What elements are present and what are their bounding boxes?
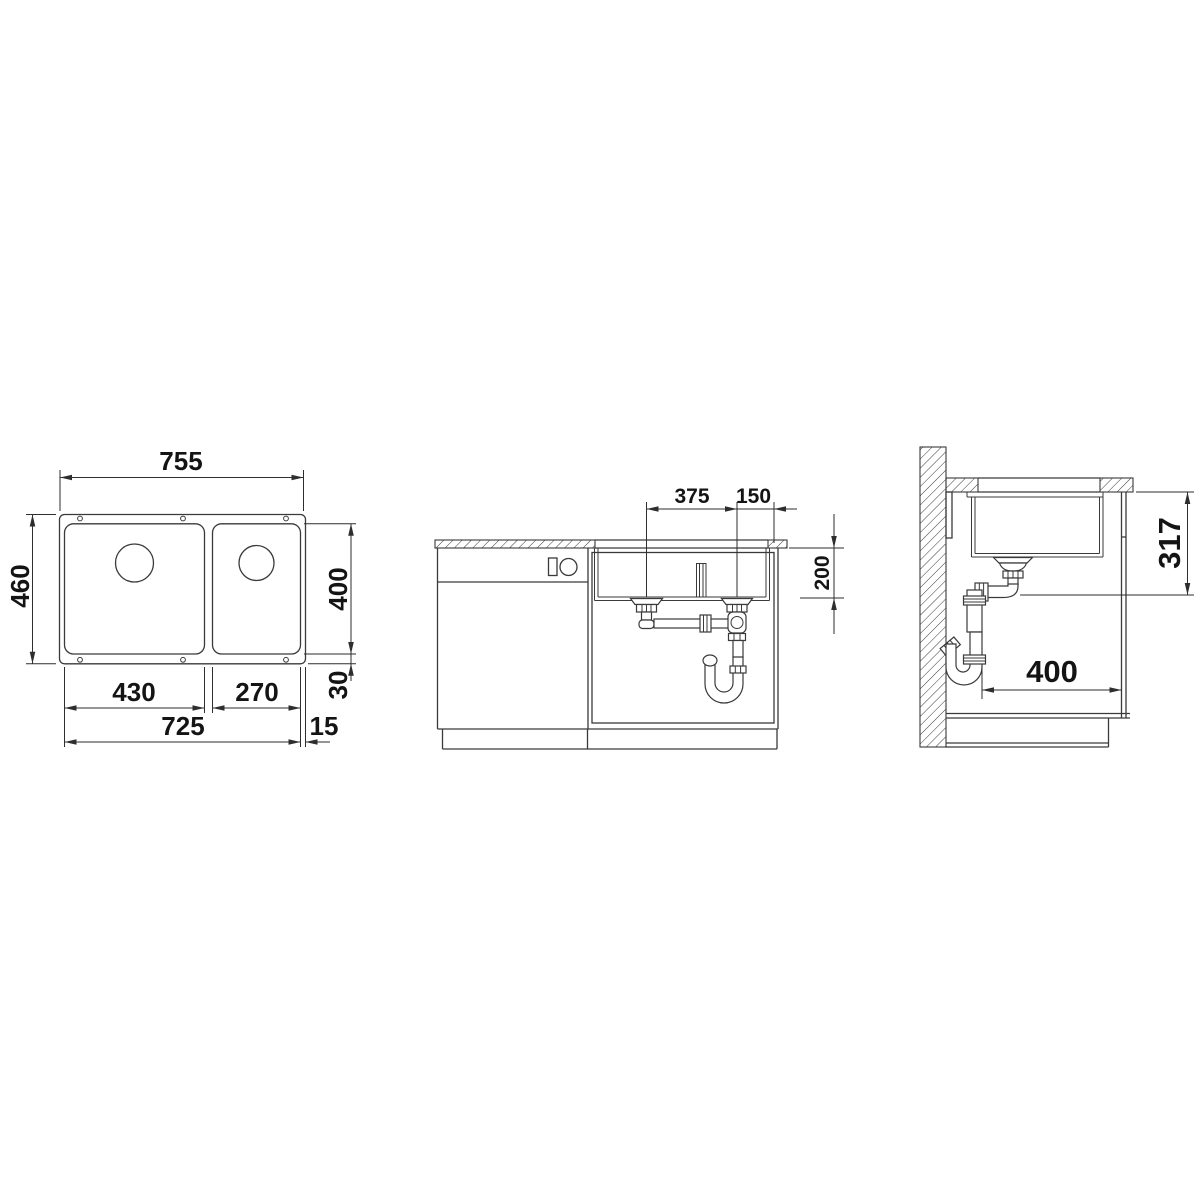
dim-bowl-depth: 400 xyxy=(323,524,354,654)
front-view: 375 150 200 xyxy=(435,485,844,749)
dim-left-bowl-width: 430 xyxy=(65,677,205,711)
dim-label-270: 270 xyxy=(235,677,278,707)
drain-hole-right xyxy=(239,546,274,581)
countertop-right-section xyxy=(768,540,787,548)
plan-view: 755 460 400 30 430 xyxy=(5,446,356,747)
dim-bowl-height: 200 xyxy=(811,514,837,634)
plinth xyxy=(443,729,778,749)
bowl-divider xyxy=(697,564,707,598)
drain-hole-left xyxy=(116,544,154,582)
dim-cutout-width: 725 xyxy=(65,711,301,745)
dim-clearance-depth: 400 xyxy=(982,654,1122,693)
dim-right-bowl-width: 270 xyxy=(213,677,301,711)
waste-pipe-horizontal xyxy=(654,615,729,632)
cabinet-opening xyxy=(592,553,774,724)
dim-label-200: 200 xyxy=(811,555,834,590)
control-panel-knob xyxy=(560,559,577,576)
wall-section xyxy=(920,447,946,747)
countertop-left-section xyxy=(435,540,595,548)
bowl-left xyxy=(65,524,205,654)
dim-drain-spacing: 375 xyxy=(647,485,738,512)
dim-label-400: 400 xyxy=(323,567,353,610)
dim-label-317: 317 xyxy=(1152,517,1187,569)
dim-label-30: 30 xyxy=(323,671,353,700)
dim-label-460: 460 xyxy=(5,564,35,607)
countertop-back-section xyxy=(946,478,978,492)
dim-label-725: 725 xyxy=(161,711,204,741)
dim-rim-bottom: 30 xyxy=(323,654,354,699)
side-view: 317 400 xyxy=(920,447,1194,747)
p-trap-front xyxy=(703,655,746,703)
mounting-holes xyxy=(78,516,289,662)
dim-label-375: 375 xyxy=(674,485,709,508)
control-panel-button xyxy=(549,558,558,576)
dim-label-15: 15 xyxy=(310,711,339,741)
dim-overall-depth: 460 xyxy=(5,515,35,664)
sink-outline xyxy=(60,515,306,664)
dim-label-755: 755 xyxy=(159,446,202,476)
s-trap-side xyxy=(940,590,985,685)
cabinet-back-rail xyxy=(946,492,952,538)
dishwasher-unit xyxy=(438,548,589,729)
dim-rim-right: 15 xyxy=(306,711,339,745)
dim-label-400-side: 400 xyxy=(1026,654,1078,689)
dim-mount-height: 317 xyxy=(1152,492,1190,595)
dim-overall-width: 755 xyxy=(60,446,304,480)
countertop-front-section xyxy=(1100,478,1133,492)
dim-drain-to-edge: 150 xyxy=(736,485,797,512)
sink-section xyxy=(595,548,770,601)
dim-label-150: 150 xyxy=(736,485,771,508)
technical-drawing-sink: 755 460 400 30 430 xyxy=(0,0,1200,1200)
dim-label-430: 430 xyxy=(112,677,155,707)
bowl-right xyxy=(213,524,301,654)
drain-assembly-side xyxy=(975,558,1033,602)
sink-section-side xyxy=(967,492,1103,557)
